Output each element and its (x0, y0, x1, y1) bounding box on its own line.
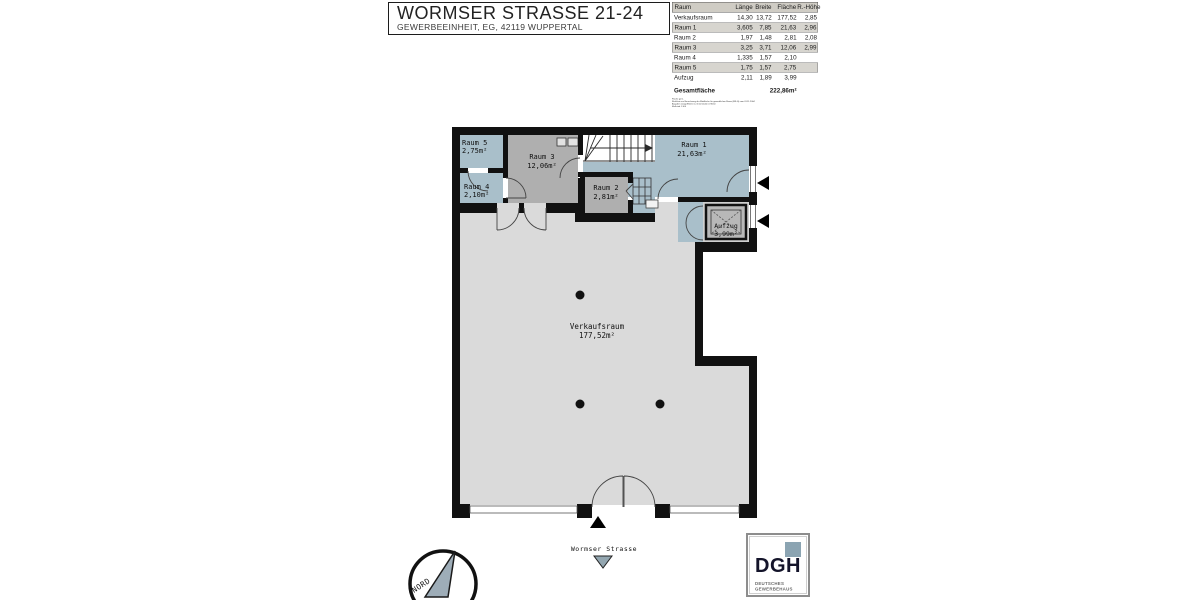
floor-plan-page: WORMSER STRASSE 21-24 GEWERBEEINHEIT, EG… (0, 0, 1200, 600)
page-title: WORMSER STRASSE 21-24 (397, 4, 661, 23)
table-cell: 7,85 (754, 24, 773, 30)
table-cell: 2,10 (773, 54, 798, 60)
dgh-logo-abbr: DGH (755, 555, 801, 578)
table-cell: Raum 2 (672, 34, 730, 40)
column (576, 400, 585, 409)
table-header-cell: Raum (673, 4, 731, 10)
elevator-corridor (678, 202, 703, 242)
total-label: Gesamtfläche (672, 87, 754, 93)
title-block: WORMSER STRASSE 21-24 GEWERBEEINHEIT, EG… (388, 2, 670, 35)
window-right-lower (749, 205, 757, 228)
area-table: RaumLängeBreiteFlächeR.-Höhe Verkaufsrau… (672, 2, 818, 116)
room-area: 2,81m² (593, 193, 618, 201)
table-cell: Raum 4 (672, 54, 730, 60)
window-arrow-icon (757, 176, 769, 190)
entrance-arrow-icon (590, 516, 606, 528)
table-header-cell: Breite (754, 4, 773, 10)
room-area: 21,63m² (677, 150, 707, 158)
table-cell: 3,71 (754, 44, 773, 50)
table-cell: 3,605 (731, 24, 754, 30)
table-row: Raum 33,253,7112,062,99 (672, 43, 818, 53)
window-arrow-icon (757, 214, 769, 228)
table-cell: 12,06 (773, 44, 798, 50)
table-cell: Verkaufsraum (672, 14, 730, 20)
table-cell: 2,96 (797, 24, 817, 30)
table-cell: 3,25 (731, 44, 754, 50)
floor-plan: Raum 5 2,75m² Raum 4 2,10m² Raum 3 12,06… (385, 120, 815, 600)
dgh-logo: DGH DEUTSCHES GEWERBEHAUS (746, 533, 810, 597)
table-cell: 21,63 (773, 24, 798, 30)
table-cell: 1,57 (754, 54, 773, 60)
shaft-box-2 (568, 138, 578, 146)
street-arrow-icon (594, 556, 612, 568)
table-row: Raum 21,971,482,812,08 (672, 33, 818, 43)
shaft-box-1 (557, 138, 566, 146)
column (576, 291, 585, 300)
column (656, 400, 665, 409)
room-label: Raum 1 (681, 141, 706, 149)
table-cell: 13,72 (754, 14, 773, 20)
table-cell: Aufzug (672, 74, 730, 80)
table-cell: Raum 3 (673, 44, 731, 50)
room-label: Aufzug (714, 222, 738, 230)
table-row: Raum 13,6057,8521,632,96 (672, 23, 818, 33)
table-cell: 177,52 (773, 14, 798, 20)
table-cell: Raum 5 (673, 64, 731, 70)
table-cell: 2,99 (797, 44, 817, 50)
street-label: Wormser Strasse (571, 545, 637, 553)
dgh-logo-line2: GEWERBEHAUS (755, 586, 793, 591)
table-cell: Raum 1 (673, 24, 731, 30)
table-row: Verkaufsraum14,3013,72177,522,85 (672, 13, 818, 23)
room-area: 2,75m² (462, 147, 487, 155)
compass: NORD (410, 551, 476, 600)
table-row: Aufzug2,111,893,99 (672, 73, 818, 83)
table-cell: 2,11 (730, 74, 753, 80)
room-area: 12,06m² (527, 162, 557, 170)
room-area: 177,52m² (579, 331, 615, 340)
table-cell: 2,85 (798, 14, 818, 20)
table-header-cell: R.-Höhe (797, 4, 817, 10)
table-cell: 1,75 (731, 64, 754, 70)
room-label: Raum 2 (593, 184, 618, 192)
table-header-cell: Fläche (773, 4, 798, 10)
page-subtitle: GEWERBEEINHEIT, EG, 42119 WUPPERTAL (397, 23, 661, 32)
table-cell: 3,99 (773, 74, 798, 80)
room-area: 2,10m² (464, 191, 489, 199)
area-table-body: Verkaufsraum14,3013,72177,522,85Raum 13,… (672, 13, 818, 83)
table-cell: 1,48 (754, 34, 773, 40)
area-table-header: RaumLängeBreiteFlächeR.-Höhe (672, 2, 818, 13)
table-cell: 2,81 (773, 34, 798, 40)
table-footnote: Maßstab 1:100 (672, 105, 819, 108)
fixture-box (646, 200, 658, 208)
table-cell: 1,335 (730, 54, 753, 60)
room-label: Raum 3 (529, 153, 554, 161)
table-header-cell: Länge (731, 4, 754, 10)
table-cell: 2,08 (798, 34, 818, 40)
total-value: 222,86m² (754, 87, 798, 93)
table-cell: 1,97 (730, 34, 753, 40)
window-right-upper (749, 166, 757, 192)
room-label: Raum 4 (464, 183, 489, 191)
table-footnotes: Fläche gem.Richtlinie zur Berechnung der… (672, 98, 819, 108)
dgh-logo-subtitle: DEUTSCHES GEWERBEHAUS (755, 581, 793, 592)
room-area: 3,99m² (714, 230, 737, 238)
table-total-row: Gesamtfläche 222,86m² (672, 85, 818, 97)
building-notch (703, 252, 749, 356)
table-row: Raum 41,3351,572,10 (672, 53, 818, 63)
room-label: Raum 5 (462, 139, 487, 147)
room-label: Verkaufsraum (570, 322, 625, 331)
table-cell: 2,75 (773, 64, 798, 70)
table-cell: 1,89 (754, 74, 773, 80)
table-cell: 14,30 (730, 14, 753, 20)
storefront-glazing-right (670, 506, 739, 513)
table-cell: 1,57 (754, 64, 773, 70)
storefront-glazing-left (470, 506, 577, 513)
table-row: Raum 51,751,572,75 (672, 63, 818, 73)
